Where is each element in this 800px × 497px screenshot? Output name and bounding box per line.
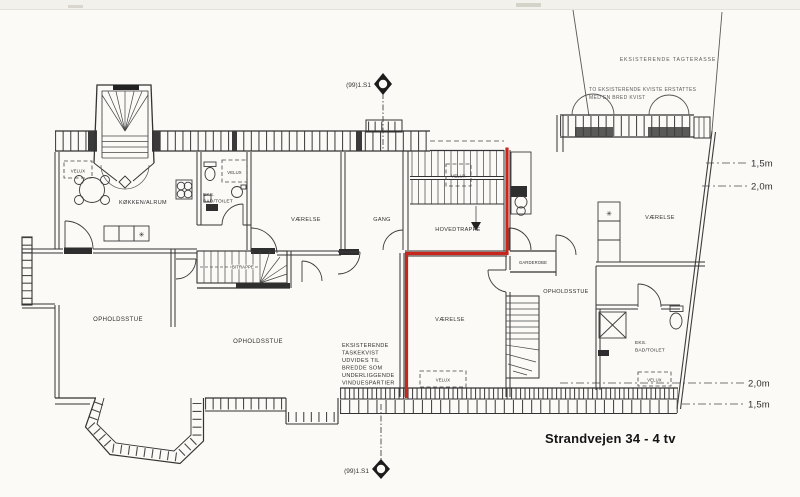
bay-window-center — [286, 398, 338, 424]
dim-label-20-bottom: 2,0m — [748, 379, 770, 390]
room-label-bitrappe: BITRAPPE — [232, 265, 254, 270]
dim-label-20-top: 2,0m — [751, 182, 773, 193]
section-label-bottom: (99)1.S1 — [344, 468, 369, 475]
velux-label: VELUX — [71, 169, 86, 174]
floor-plan-page: KØKKEN/ALRUM EKS. BAD/TOILET VÆRELSE GAN… — [0, 0, 800, 497]
note-tagterrasse: EKSISTERENDE TAGTERASSE — [620, 57, 717, 63]
room-label-opholdsstue-left: OPHOLDSSTUE — [93, 317, 143, 323]
room-label-vaerelse-red: VÆRELSE — [435, 317, 465, 323]
red-apartment-boundary — [407, 148, 508, 399]
room-label-eks-bad-left-2: BAD/TOILET — [203, 199, 233, 205]
note-taskekvist-6: VINDUESPARTIER — [342, 381, 395, 387]
velux-label: VELUX — [227, 170, 242, 175]
annotations: EKSISTERENDE TAGTERASSE TO EKSISTERENDE … — [342, 57, 716, 387]
section-marker-top — [374, 73, 392, 150]
room-label-opholdsstue-center: OPHOLDSSTUE — [233, 339, 283, 345]
room-label-opholdsstue-right: OPHOLDSSTUE — [543, 289, 588, 295]
bay-window-left — [86, 398, 204, 464]
room-label-vaerelse-right: VÆRELSE — [645, 215, 675, 221]
dimension-lines — [560, 163, 748, 404]
note-kviste-1: TO EKSISTERENDE KVISTE ERSTATTES — [589, 87, 697, 93]
hovedtrappe-stair — [410, 151, 504, 231]
toilet-bowl — [205, 168, 215, 181]
note-taskekvist-1: EKSISTERENDE — [342, 343, 389, 349]
room-label-gang: GANG — [373, 217, 391, 223]
section-label-top: (99)1.S1 — [346, 82, 371, 89]
note-taskekvist-4: BREDDE SOM — [342, 366, 383, 372]
velux-label: VELUX — [436, 378, 451, 383]
room-label-garderobe: GARDEROBE — [519, 260, 547, 265]
section-marker-bottom — [372, 404, 390, 479]
dim-label-15-bottom: 1,5m — [748, 400, 770, 411]
closet-star-icon: ✳ — [606, 210, 612, 218]
dimension-labels: 1,5m 2,0m 2,0m 1,5m — [748, 159, 773, 411]
floor-plan-canvas: KØKKEN/ALRUM EKS. BAD/TOILET VÆRELSE GAN… — [0, 0, 800, 497]
dim-label-15-top: 1,5m — [751, 159, 773, 170]
note-kviste-2: MED EN BRED KVIST — [589, 95, 646, 101]
toilet-bowl — [670, 313, 682, 329]
kitchen-fixtures — [75, 176, 193, 242]
velux-label: VELUX — [451, 174, 466, 179]
velux-label: VELUX — [647, 378, 662, 383]
scan-artifacts — [0, 0, 800, 10]
room-label-hovedtrappe: HOVEDTRAPPE — [435, 227, 480, 233]
page-title: Strandvejen 34 - 4 tv — [545, 431, 676, 446]
room-label-eks-bad-right-2: BAD/TOILET — [635, 348, 665, 354]
right-kitchenette — [511, 152, 531, 215]
room-label-eks-bad-left-1: EKS. — [203, 192, 215, 198]
note-taskekvist-3: UDVIDES TIL — [342, 358, 380, 364]
dormer-bump — [366, 120, 402, 132]
room-label-koekken-alrum: KØKKEN/ALRUM — [119, 200, 167, 206]
room-label-eks-bad-right-1: EKS. — [635, 340, 647, 346]
stair-tower — [94, 85, 154, 189]
note-taskekvist-5: UNDERLIGGENDE — [342, 373, 395, 379]
terrace-pillar — [694, 117, 710, 138]
burner-star-icon: ✳ — [139, 231, 145, 239]
room-label-vaerelse-left: VÆRELSE — [291, 217, 321, 223]
toilet-tank — [204, 162, 216, 167]
winder-stair-right — [506, 296, 539, 378]
sink — [515, 196, 527, 208]
note-taskekvist-2: TASKEKVIST — [342, 351, 379, 357]
